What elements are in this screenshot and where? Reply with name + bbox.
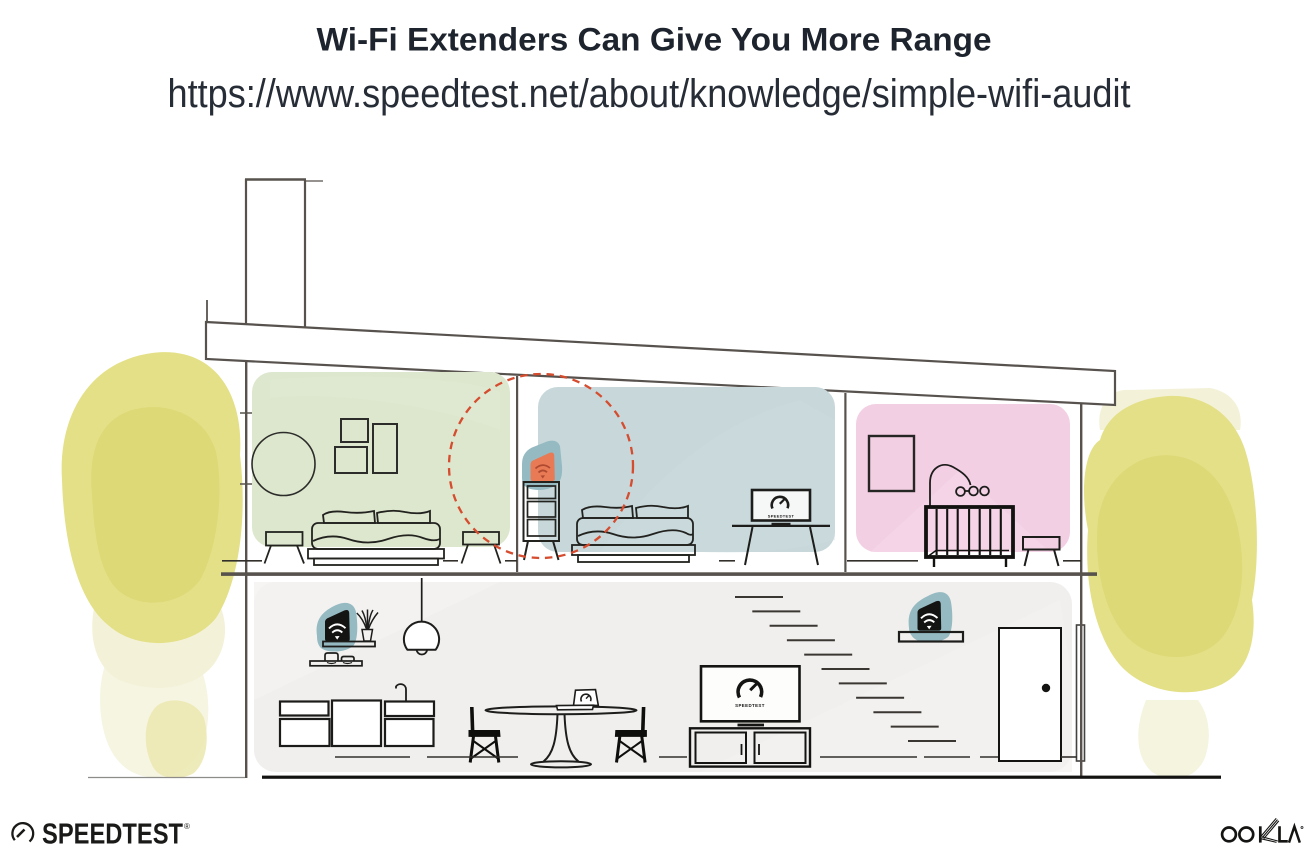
svg-text:https://www.speedtest.net/abou: https://www.speedtest.net/about/knowledg… (168, 72, 1131, 116)
svg-text:SPEEDTEST: SPEEDTEST (735, 703, 765, 708)
svg-text:SPEEDTEST: SPEEDTEST (768, 514, 795, 519)
svg-text:®: ® (184, 822, 190, 831)
svg-text:Wi-Fi Extenders Can Give You M: Wi-Fi Extenders Can Give You More Range (317, 22, 992, 58)
svg-text:SPEEDTEST: SPEEDTEST (42, 819, 183, 851)
